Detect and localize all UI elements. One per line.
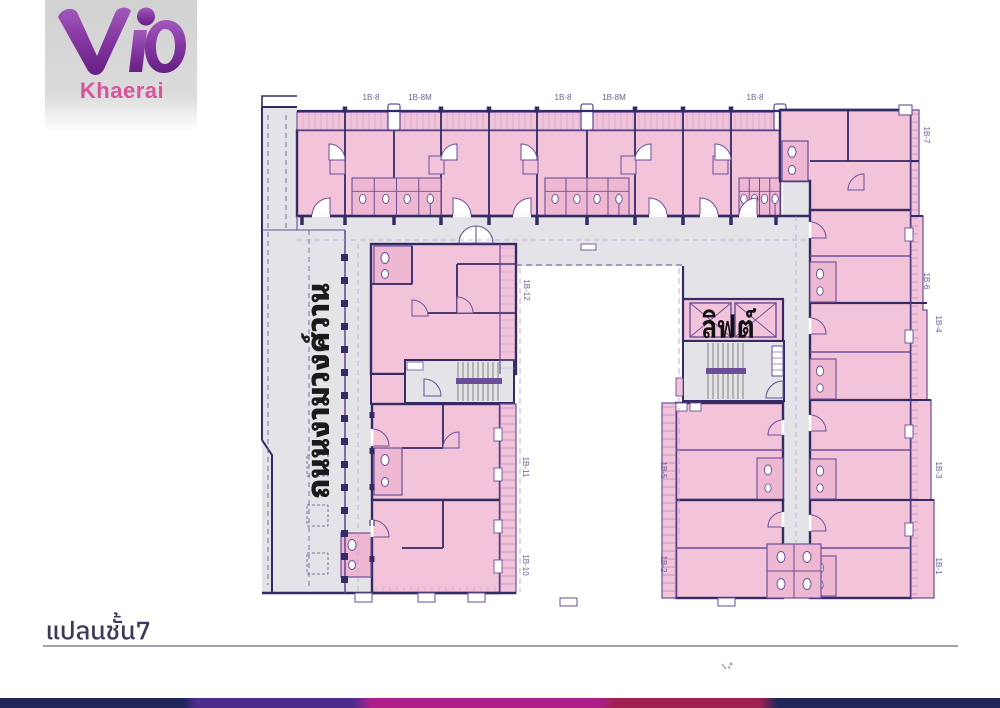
svg-text:1B-8: 1B-8 (555, 93, 572, 102)
svg-text:1B-8: 1B-8 (363, 93, 380, 102)
svg-text:1B-10: 1B-10 (521, 554, 530, 576)
svg-text:1B-11: 1B-11 (521, 457, 530, 478)
svg-text:1B-1: 1B-1 (934, 558, 943, 575)
svg-text:1B-6: 1B-6 (922, 273, 931, 290)
svg-text:1B-12: 1B-12 (522, 279, 531, 301)
svg-text:1B-5: 1B-5 (659, 462, 668, 479)
svg-text:Khaerai: Khaerai (80, 78, 164, 103)
svg-text:1B-8M: 1B-8M (408, 93, 432, 102)
svg-text:1B-4: 1B-4 (934, 316, 943, 333)
svg-text:1B-8M: 1B-8M (602, 93, 626, 102)
svg-text:1B-7: 1B-7 (922, 127, 931, 144)
svg-text:1B-2: 1B-2 (659, 556, 668, 573)
svg-text:1B-8: 1B-8 (747, 93, 764, 102)
svg-text:1B-3: 1B-3 (934, 462, 943, 479)
